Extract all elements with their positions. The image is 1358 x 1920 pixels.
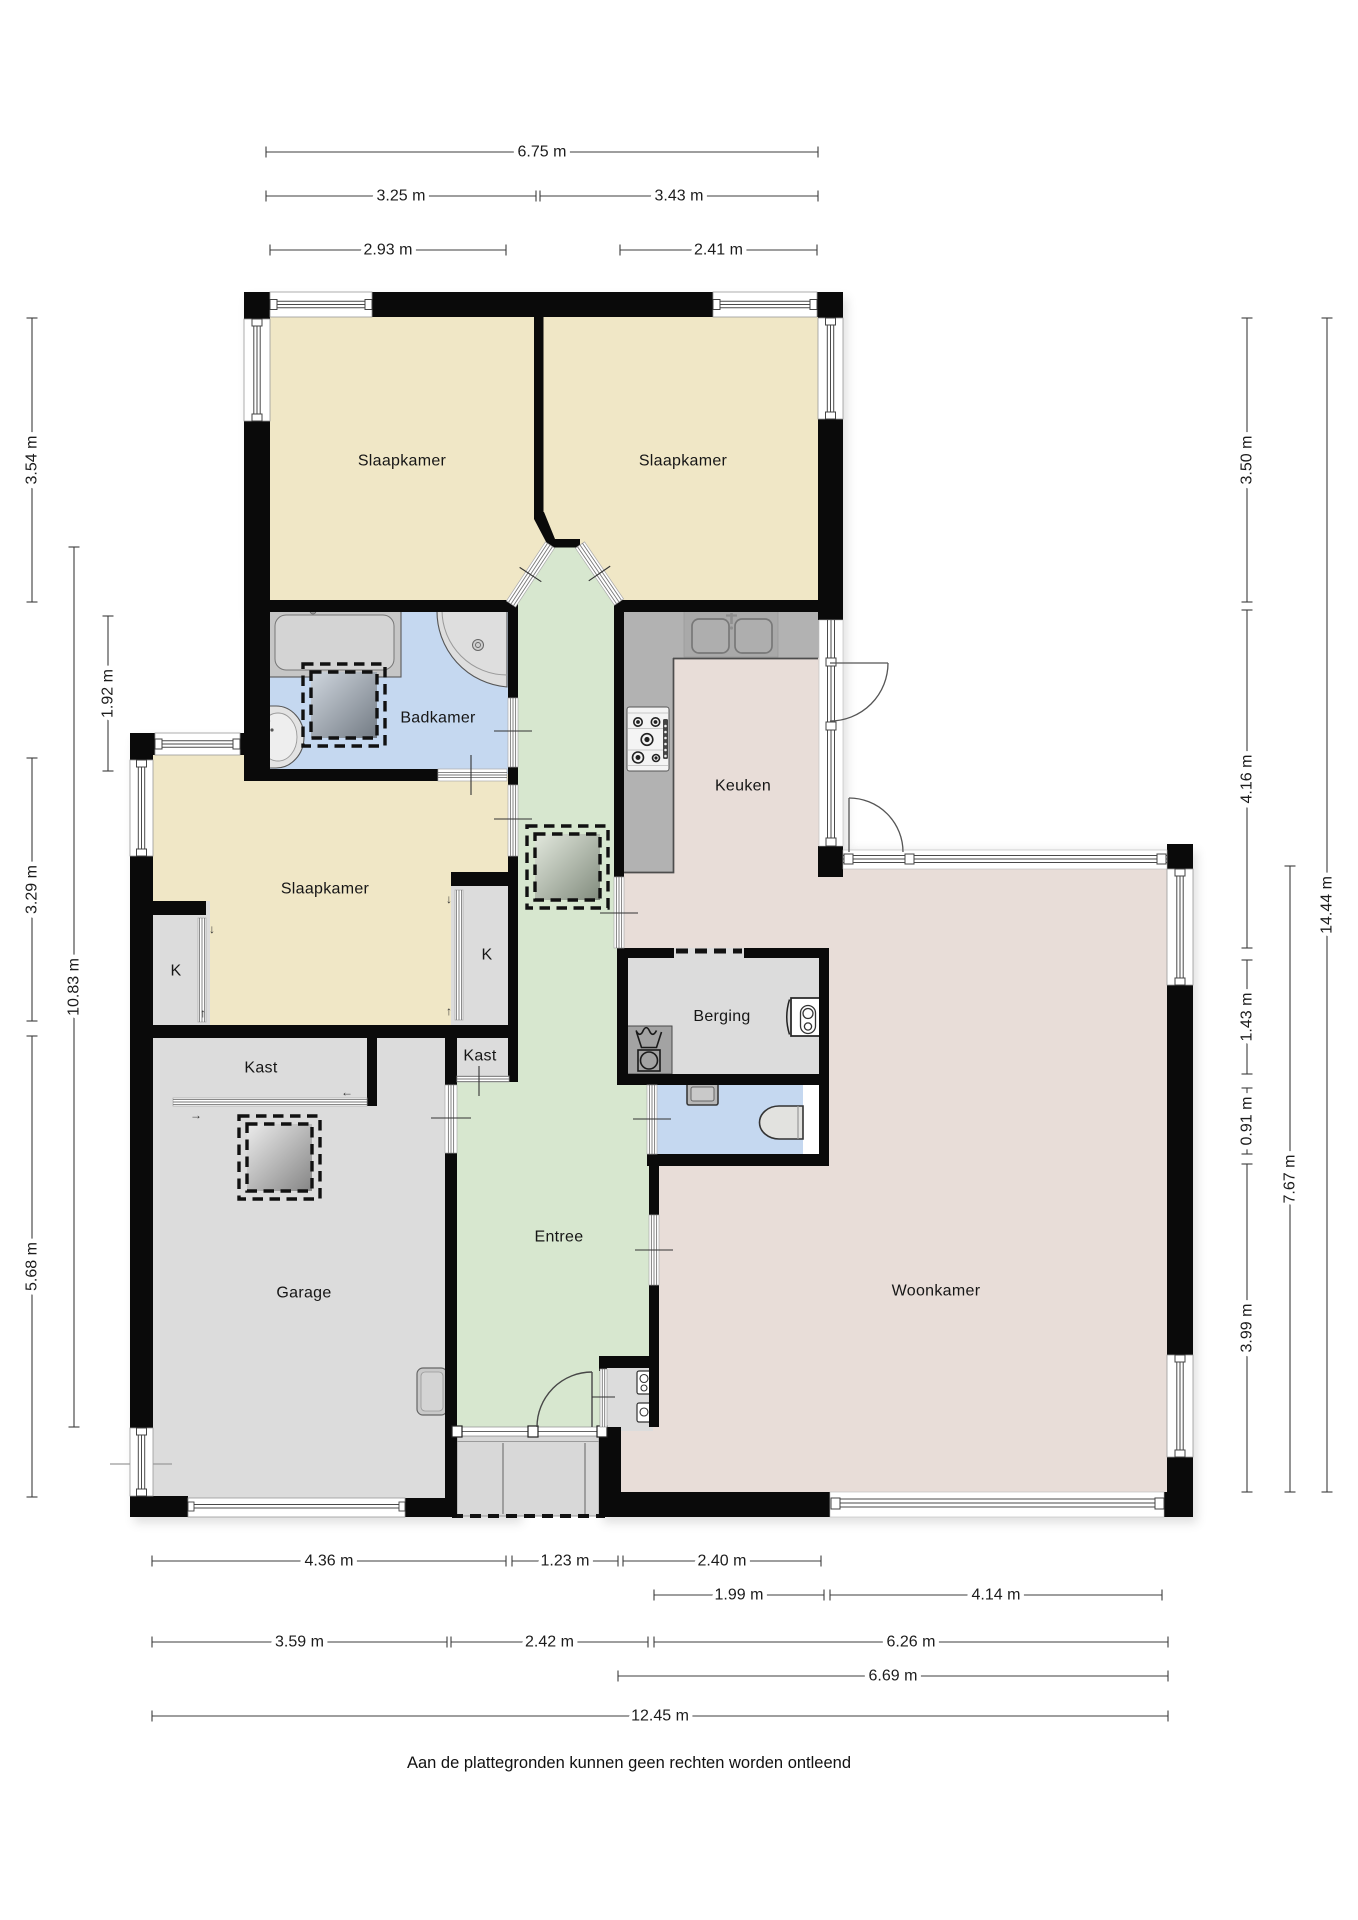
svg-text:4.14 m: 4.14 m	[972, 1587, 1021, 1604]
svg-text:10.83 m: 10.83 m	[66, 958, 83, 1016]
svg-text:1.99 m: 1.99 m	[715, 1587, 764, 1604]
svg-text:Entree: Entree	[535, 1229, 584, 1246]
svg-text:2.40 m: 2.40 m	[698, 1553, 747, 1570]
svg-text:5.68 m: 5.68 m	[24, 1242, 41, 1291]
svg-text:2.93 m: 2.93 m	[364, 242, 413, 259]
svg-text:Kast: Kast	[244, 1060, 277, 1077]
svg-text:6.69 m: 6.69 m	[869, 1668, 918, 1685]
svg-text:K: K	[482, 947, 493, 964]
svg-text:6.75 m: 6.75 m	[518, 144, 567, 161]
svg-text:4.16 m: 4.16 m	[1239, 755, 1256, 804]
svg-text:4.36 m: 4.36 m	[305, 1553, 354, 1570]
svg-text:14.44 m: 14.44 m	[1319, 876, 1336, 934]
svg-text:3.43 m: 3.43 m	[655, 188, 704, 205]
svg-text:Garage: Garage	[276, 1285, 331, 1302]
svg-text:↓: ↓	[446, 892, 452, 906]
svg-text:Kast: Kast	[463, 1048, 496, 1065]
svg-text:6.26 m: 6.26 m	[887, 1634, 936, 1651]
svg-text:Berging: Berging	[693, 1008, 750, 1025]
svg-text:0.91 m: 0.91 m	[1239, 1097, 1256, 1146]
svg-text:↓: ↓	[209, 922, 215, 936]
svg-text:Slaapkamer: Slaapkamer	[639, 453, 728, 470]
svg-text:12.45 m: 12.45 m	[631, 1708, 689, 1725]
svg-text:2.41 m: 2.41 m	[694, 242, 743, 259]
svg-text:Woonkamer: Woonkamer	[892, 1283, 981, 1300]
svg-text:1.23 m: 1.23 m	[541, 1553, 590, 1570]
svg-text:2.42 m: 2.42 m	[525, 1634, 574, 1651]
svg-text:1.43 m: 1.43 m	[1239, 993, 1256, 1042]
svg-text:K: K	[171, 963, 182, 980]
svg-text:→: →	[190, 1108, 202, 1122]
svg-text:↑: ↑	[200, 1006, 206, 1020]
svg-text:Badkamer: Badkamer	[400, 710, 476, 727]
svg-text:3.99 m: 3.99 m	[1239, 1304, 1256, 1353]
svg-text:3.29 m: 3.29 m	[24, 865, 41, 914]
svg-text:3.25 m: 3.25 m	[377, 188, 426, 205]
svg-text:7.67 m: 7.67 m	[1282, 1155, 1299, 1204]
svg-text:Slaapkamer: Slaapkamer	[358, 453, 447, 470]
svg-text:←: ←	[341, 1085, 353, 1099]
svg-text:Aan de plattegronden kunnen ge: Aan de plattegronden kunnen geen rechten…	[407, 1754, 851, 1772]
svg-text:3.59 m: 3.59 m	[275, 1634, 324, 1651]
svg-text:3.54 m: 3.54 m	[24, 436, 41, 485]
svg-text:↑: ↑	[446, 1004, 452, 1018]
svg-text:Slaapkamer: Slaapkamer	[281, 881, 370, 898]
svg-text:Keuken: Keuken	[715, 778, 771, 795]
svg-text:1.92 m: 1.92 m	[100, 669, 117, 718]
svg-text:3.50 m: 3.50 m	[1239, 436, 1256, 485]
